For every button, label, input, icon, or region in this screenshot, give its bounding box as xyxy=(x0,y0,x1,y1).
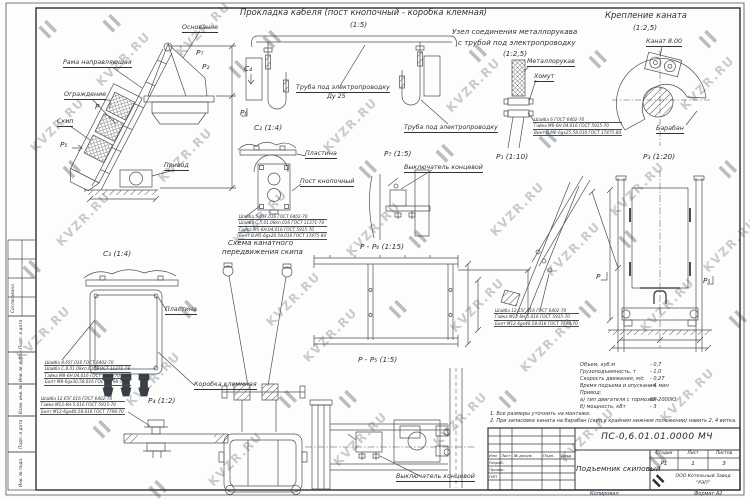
conduit-pipe-label-2: Труба под электропроводку xyxy=(404,124,498,133)
mark-p3: P₃ (1:20) xyxy=(643,152,675,161)
rope-scheme-title-2: передвижения скипа xyxy=(222,247,303,256)
mark-pp5: P - P₅ (1:5) xyxy=(358,355,397,364)
pp6-view xyxy=(314,255,531,347)
button-post-label: Пост кнопочный xyxy=(300,178,354,187)
side-stamp-inv-orig: Инв. № подл. xyxy=(19,457,24,487)
mark-p-main: P xyxy=(95,102,99,111)
p1-view xyxy=(501,176,621,320)
mark-p1: P₁ (1:10) xyxy=(496,152,528,161)
rope-fastening-title: Крепление каната xyxy=(605,10,687,20)
cable-routing-title: Прокладка кабеля (пост кнопочный - короб… xyxy=(240,7,487,17)
mark-p5-small: P₅ xyxy=(703,276,710,285)
mark-pp6: P - P₆ (1:15) xyxy=(360,242,404,251)
note-2: 2. При запасовке каната на барабан (скип… xyxy=(490,418,737,424)
col-doc: № докум. xyxy=(514,453,533,458)
c2-view xyxy=(238,142,306,217)
col-podp: Подп. xyxy=(543,453,555,458)
clamp-label: Хомут xyxy=(534,73,554,82)
mark-p7: P₇ (1:5) xyxy=(384,149,411,158)
hose-unit-view xyxy=(504,60,536,148)
base-label: Основание xyxy=(182,24,218,33)
drum-label: Барабан xyxy=(656,125,684,134)
mark-p7-main: P₇ xyxy=(196,48,203,57)
guide-frame-label: Рама направляющая xyxy=(63,59,132,68)
mark-c4: C₄ xyxy=(244,64,252,73)
mark-p6: P₆ xyxy=(240,108,247,117)
role-developer: Разраб. xyxy=(489,460,504,465)
limit-switch-label-2: Выключатель концевой xyxy=(396,473,475,482)
doc-number: ПС-0,6.01.01.0000 МЧ xyxy=(578,432,736,442)
stage-value: Р1 xyxy=(650,461,678,467)
drive-label: Привод xyxy=(164,162,189,171)
skip-label: Скип xyxy=(57,118,73,127)
col-list: Лист xyxy=(501,453,511,458)
du25-label: Ду 25 xyxy=(327,93,346,100)
copied-label: Копировал xyxy=(590,491,619,497)
col-data: Дата xyxy=(561,453,571,458)
company-line-1: ООО Котельный Завод xyxy=(666,474,740,479)
col-izm: Изм xyxy=(489,453,497,458)
main-assembly-view xyxy=(65,31,254,202)
mark-p2: P₂ xyxy=(202,62,209,71)
plate-label-1: Пластина xyxy=(305,150,337,159)
sheets-value: 3 xyxy=(708,461,740,467)
cable-routing-scale: (1:5) xyxy=(350,20,367,29)
metal-hose-label: Металлорукав xyxy=(527,58,575,67)
mark-c3: C₃ (1:4) xyxy=(103,249,131,258)
side-stamp-agreed: Согласовано xyxy=(11,284,16,313)
drawing-sheet: KVZR.RUKVZR.RUKVZR.RUKVZR.RUKVZR.RUKVZR.… xyxy=(0,0,750,500)
conduit-pipe-label-1: Труба под электропроводку xyxy=(296,84,390,93)
rope-scheme-view xyxy=(219,263,307,495)
mark-p-small: P xyxy=(596,272,600,281)
sheets-header: Листов xyxy=(708,451,740,456)
rope-fastening-scale: (1:2,5) xyxy=(633,23,657,32)
role-gip: ГИП xyxy=(489,474,497,479)
side-stamp-inv-dup: Инв. № дубл. xyxy=(19,353,24,382)
fastener-list-p4: Шайба 12.65Г.016 ГОСТ 6402-70 Гайка М12-… xyxy=(40,396,125,415)
mark-c2: C₂ (1:4) xyxy=(254,123,282,132)
side-stamp-sign-date-1: Подп. и дата xyxy=(19,320,24,349)
fastener-list-hose: Шайба 6 ГОСТ 6402-70 Гайка М6-6Н.04.016 … xyxy=(533,117,622,136)
side-stamp-repl-inv: Взам. инв. № xyxy=(19,385,24,414)
mark-p5-main: P₅ xyxy=(60,140,67,149)
p4-view xyxy=(124,412,228,458)
hose-unit-title-2: с трубой под электропроводку xyxy=(458,38,576,47)
fastener-list-p1: Шайба 12.65Г.016 ГОСТ 6402-70 Гайка М12-… xyxy=(494,308,579,327)
plate-label-2: Пластина xyxy=(165,306,197,315)
hose-unit-title-1: Узел соединения металлорукава xyxy=(452,27,577,36)
company-line-2: "РЭП" xyxy=(666,481,740,486)
terminal-box-label: Коробка клеммная xyxy=(194,381,257,390)
p7-view xyxy=(369,170,432,240)
role-checker: Провер. xyxy=(489,467,505,472)
stage-header: Стадия xyxy=(650,451,678,456)
fastener-list-c2: Шайба 5.65Г.016 ГОСТ 6402-70 Шайба С.5.0… xyxy=(238,214,327,240)
guard-label: Ограждение xyxy=(64,91,106,100)
pp5-view xyxy=(305,368,475,489)
p3-view xyxy=(601,170,713,352)
cable-routing-view xyxy=(246,36,457,124)
fastener-list-c3: Шайба 8.65Г.016 ГОСТ 6402-70 Шайба С.8.0… xyxy=(44,360,131,386)
format-label: Формат А2 xyxy=(694,491,722,497)
sheet-header: Лист xyxy=(678,451,708,456)
side-stamp-sign-date-2: Подп. и дата xyxy=(19,420,24,449)
sheet-value: 1 xyxy=(678,461,708,467)
note-1: 1. Все размеры уточнить на монтаже. xyxy=(490,411,591,417)
mark-p4: P₄ (1:2) xyxy=(148,396,175,405)
hose-unit-scale: (1:2,5) xyxy=(503,49,527,58)
rope-label: Канат 8.00 xyxy=(646,38,682,47)
limit-switch-label-1: Выключатель концевой xyxy=(404,164,483,173)
doc-title: Подъемник скиповый xyxy=(576,464,649,473)
